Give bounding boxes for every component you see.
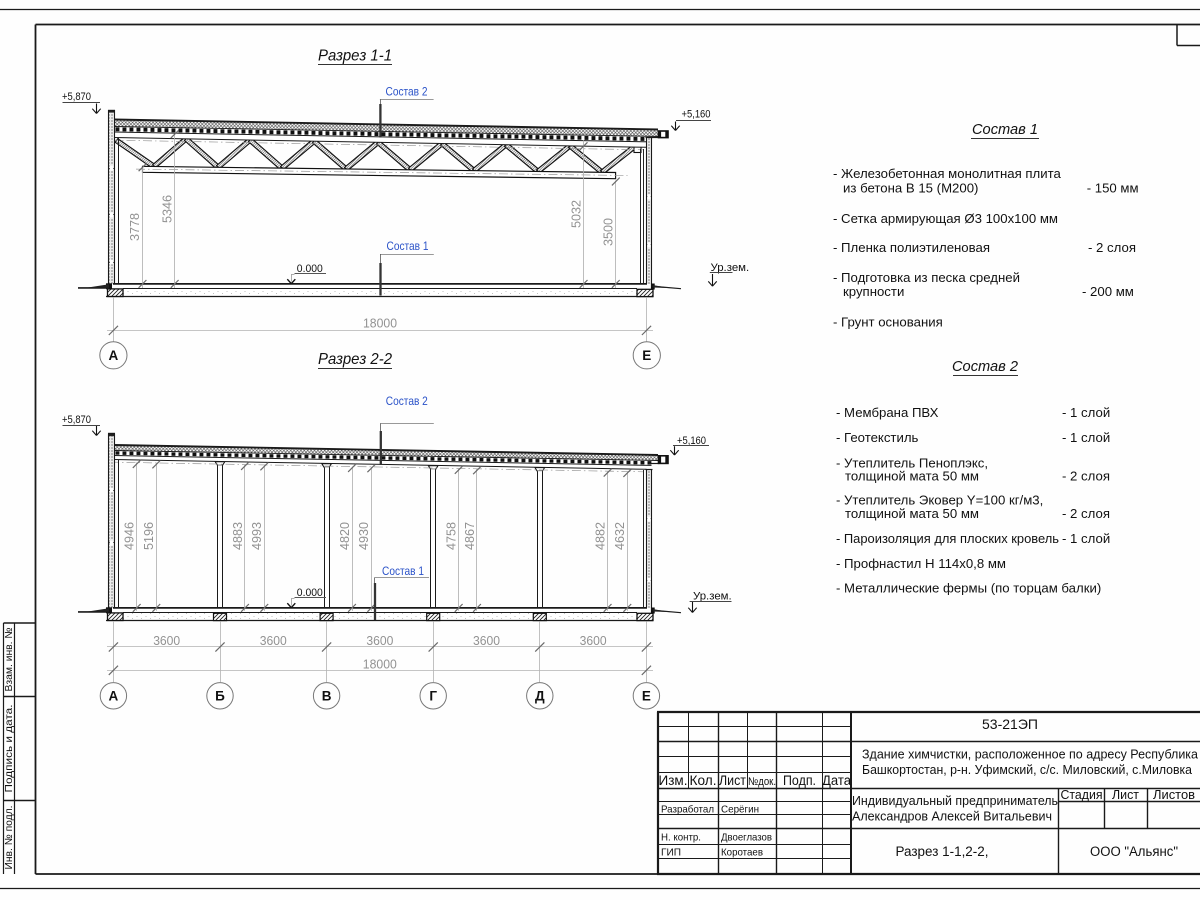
svg-text:3600: 3600 [260, 634, 287, 648]
svg-text:- Грунт основания: - Грунт основания [833, 315, 943, 330]
svg-text:Состав 1: Состав 1 [387, 240, 429, 253]
svg-text:№док.: №док. [748, 776, 776, 788]
svg-text:Разработал: Разработал [661, 804, 714, 816]
svg-text:4632: 4632 [613, 522, 627, 550]
svg-text:Серёгин: Серёгин [721, 805, 759, 816]
svg-text:толщиной мата 50 мм: толщиной мата 50 мм [845, 506, 979, 521]
svg-text:4993: 4993 [250, 522, 264, 550]
svg-text:Коротаев: Коротаев [721, 848, 763, 859]
svg-text:+5,870: +5,870 [62, 91, 91, 103]
svg-text:ГИП: ГИП [661, 848, 681, 859]
svg-text:Здание химчистки, расположенн: Здание химчистки, расположенное по адрес… [862, 747, 1199, 762]
svg-text:4867: 4867 [463, 522, 477, 550]
svg-text:18000: 18000 [363, 658, 397, 672]
svg-text:5346: 5346 [160, 195, 174, 223]
svg-text:4882: 4882 [593, 522, 607, 550]
svg-text:4883: 4883 [231, 522, 245, 550]
svg-text:Двоеглазов: Двоеглазов [721, 833, 772, 844]
svg-text:Н. контр.: Н. контр. [661, 833, 701, 844]
svg-text:+5,160: +5,160 [682, 109, 711, 121]
svg-text:- 150 мм: - 150 мм [1087, 181, 1139, 196]
svg-text:Башкортостан, р-н. Уфимский, с: Башкортостан, р-н. Уфимский, с/с. Миловс… [862, 762, 1193, 777]
svg-text:Состав 2: Состав 2 [386, 86, 428, 99]
svg-text:Инв. № подл.: Инв. № подл. [4, 806, 15, 870]
svg-text:4820: 4820 [338, 522, 352, 550]
svg-text:- Сетка армирующая Ø3 100х100: - Сетка армирующая Ø3 100х100 мм [833, 211, 1058, 226]
svg-text:Подп.: Подп. [783, 773, 816, 788]
svg-text:Состав 2: Состав 2 [952, 359, 1018, 375]
svg-text:53-21ЭП: 53-21ЭП [982, 717, 1038, 732]
svg-text:5196: 5196 [142, 522, 156, 550]
svg-text:А: А [109, 348, 119, 363]
svg-text:Лист: Лист [719, 773, 746, 788]
svg-text:Лист: Лист [1112, 787, 1139, 802]
svg-text:толщиной мата 50 мм: толщиной мата 50 мм [845, 469, 979, 484]
svg-text:Состав 1: Состав 1 [382, 565, 424, 578]
svg-text:4946: 4946 [123, 522, 137, 550]
svg-text:+5,870: +5,870 [62, 414, 91, 426]
svg-text:- 2 слоя: - 2 слоя [1062, 506, 1110, 521]
svg-text:3600: 3600 [473, 634, 500, 648]
svg-text:Разрез 2-2: Разрез 2-2 [318, 351, 392, 368]
svg-text:Ур.зем.: Ур.зем. [693, 591, 732, 603]
svg-text:18000: 18000 [363, 317, 397, 331]
svg-text:- 200 мм: - 200 мм [1082, 284, 1134, 299]
svg-text:3600: 3600 [580, 634, 607, 648]
svg-text:- Профнастил Н 114х0,8 мм: - Профнастил Н 114х0,8 мм [836, 556, 1006, 571]
svg-text:из бетона В 15 (М200): из бетона В 15 (М200) [843, 181, 978, 196]
svg-text:3600: 3600 [366, 634, 393, 648]
svg-text:Взам. инв. №: Взам. инв. № [4, 628, 15, 692]
svg-text:0.000: 0.000 [297, 263, 323, 275]
svg-text:- Геотекстиль: - Геотекстиль [836, 430, 919, 445]
svg-text:Дата: Дата [822, 773, 851, 788]
svg-text:Разрез 1-1,2-2,: Разрез 1-1,2-2, [896, 844, 989, 859]
svg-text:- 1 слой: - 1 слой [1062, 531, 1110, 546]
svg-text:Состав 1: Состав 1 [972, 122, 1038, 138]
svg-text:Индивидуальный предприниматель: Индивидуальный предприниматель [852, 793, 1058, 808]
svg-text:4758: 4758 [445, 522, 459, 550]
svg-text:- 1 слой: - 1 слой [1062, 430, 1110, 445]
svg-text:Б: Б [215, 689, 225, 704]
svg-text:В: В [322, 689, 332, 704]
svg-text:ООО "Альянс": ООО "Альянс" [1090, 844, 1178, 859]
svg-text:Разрез 1-1: Разрез 1-1 [318, 48, 392, 65]
svg-text:Д: Д [535, 689, 545, 704]
svg-text:Состав 2: Состав 2 [386, 395, 428, 408]
svg-text:А: А [109, 689, 119, 704]
svg-text:Е: Е [642, 689, 651, 704]
svg-text:Стадия: Стадия [1061, 787, 1103, 802]
svg-text:- Металлические фермы (по торц: - Металлические фермы (по торцам балки) [836, 581, 1101, 596]
svg-text:3500: 3500 [602, 218, 616, 246]
svg-text:- 2 слоя: - 2 слоя [1062, 469, 1110, 484]
svg-text:Александров Алексей Витальевич: Александров Алексей Витальевич [852, 809, 1052, 824]
svg-text:3600: 3600 [153, 634, 180, 648]
svg-text:- Пленка полиэтиленовая: - Пленка полиэтиленовая [833, 240, 990, 255]
svg-text:Г: Г [429, 689, 437, 704]
svg-text:- Подготовка из песка средней: - Подготовка из песка средней [833, 270, 1020, 285]
svg-text:- Мембрана ПВХ: - Мембрана ПВХ [836, 405, 939, 420]
svg-text:- 1 слой: - 1 слой [1062, 405, 1110, 420]
svg-text:5032: 5032 [569, 200, 583, 228]
svg-text:- Железобетонная монолитная п: - Железобетонная монолитная плита [833, 166, 1062, 181]
svg-text:Листов: Листов [1153, 787, 1195, 802]
svg-text:Е: Е [642, 348, 651, 363]
svg-text:Подпись и дата.: Подпись и дата. [4, 705, 15, 793]
svg-text:4930: 4930 [357, 522, 371, 550]
svg-text:- 2 слоя: - 2 слоя [1088, 240, 1136, 255]
svg-text:крупности: крупности [843, 284, 904, 299]
svg-text:Изм.: Изм. [659, 773, 688, 788]
svg-text:Кол.: Кол. [690, 773, 717, 788]
svg-text:- Пароизоляция для плоских кро: - Пароизоляция для плоских кровель [836, 531, 1059, 546]
svg-text:3778: 3778 [128, 213, 142, 241]
